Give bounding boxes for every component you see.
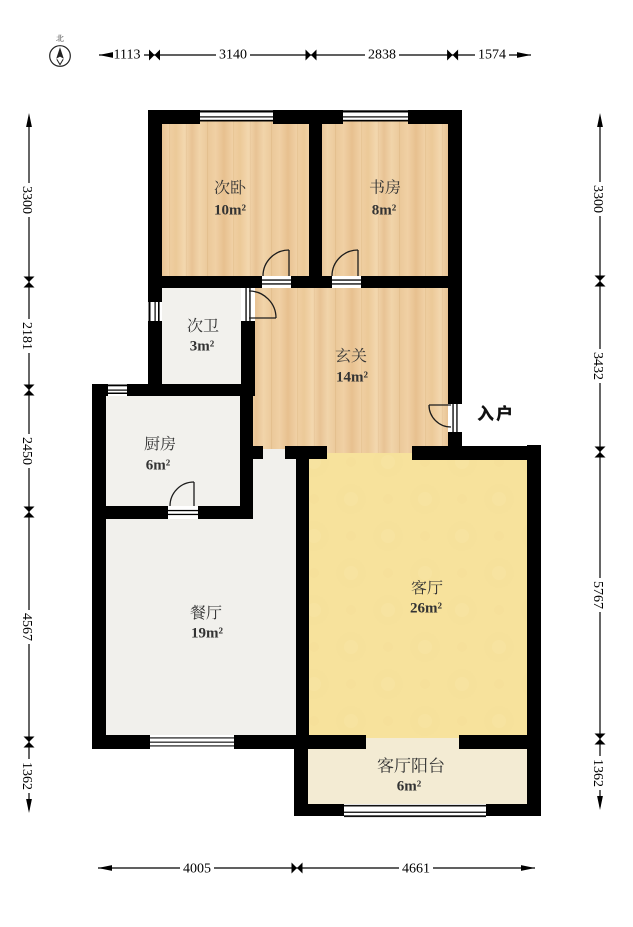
svg-text:1113: 1113 — [114, 48, 141, 63]
svg-text:1574: 1574 — [478, 48, 506, 63]
svg-text:6m²: 6m² — [397, 778, 422, 794]
svg-text:3300: 3300 — [590, 185, 605, 213]
svg-text:6m²: 6m² — [146, 457, 171, 473]
svg-text:3300: 3300 — [19, 186, 34, 214]
svg-text:8m²: 8m² — [372, 202, 397, 218]
svg-text:1362: 1362 — [590, 759, 605, 787]
svg-text:10m²: 10m² — [214, 202, 246, 218]
svg-text:2181: 2181 — [19, 322, 34, 350]
svg-text:2838: 2838 — [368, 48, 396, 63]
svg-text:19m²: 19m² — [191, 625, 223, 641]
svg-text:26m²: 26m² — [410, 600, 442, 616]
svg-text:2450: 2450 — [19, 437, 34, 465]
svg-text:1362: 1362 — [19, 762, 34, 790]
svg-text:5767: 5767 — [590, 581, 605, 609]
svg-text:4567: 4567 — [19, 613, 34, 641]
svg-text:4661: 4661 — [402, 861, 430, 876]
svg-text:3140: 3140 — [219, 48, 247, 63]
svg-text:4005: 4005 — [183, 861, 211, 876]
svg-text:3432: 3432 — [590, 352, 605, 380]
svg-text:14m²: 14m² — [336, 369, 368, 385]
svg-text:3m²: 3m² — [190, 338, 215, 354]
